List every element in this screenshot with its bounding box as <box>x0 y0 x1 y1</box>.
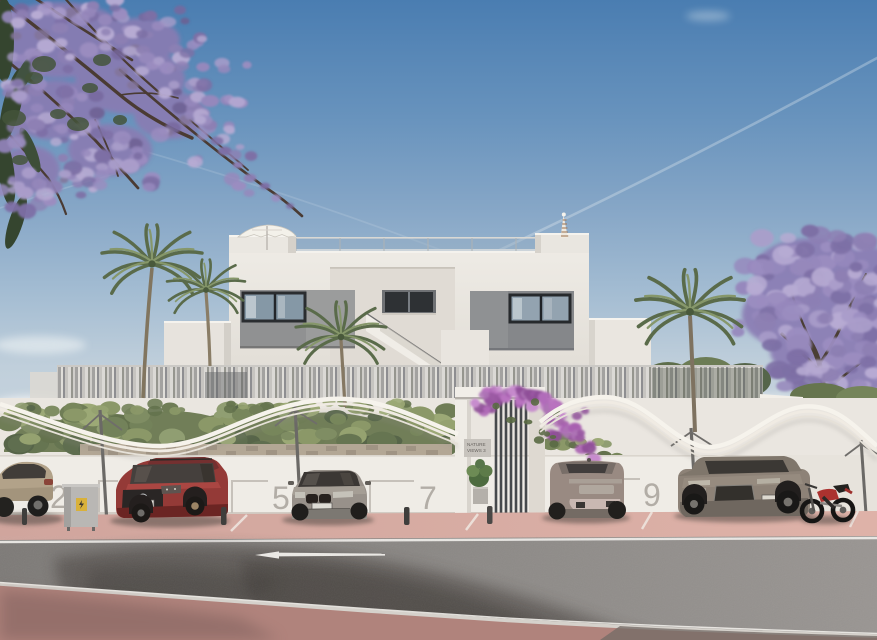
svg-text:VIEWS 3: VIEWS 3 <box>467 448 486 453</box>
svg-text:7: 7 <box>419 480 437 516</box>
svg-text:9: 9 <box>643 477 661 513</box>
svg-text:5: 5 <box>272 480 290 516</box>
svg-text:NATURE: NATURE <box>467 442 486 447</box>
